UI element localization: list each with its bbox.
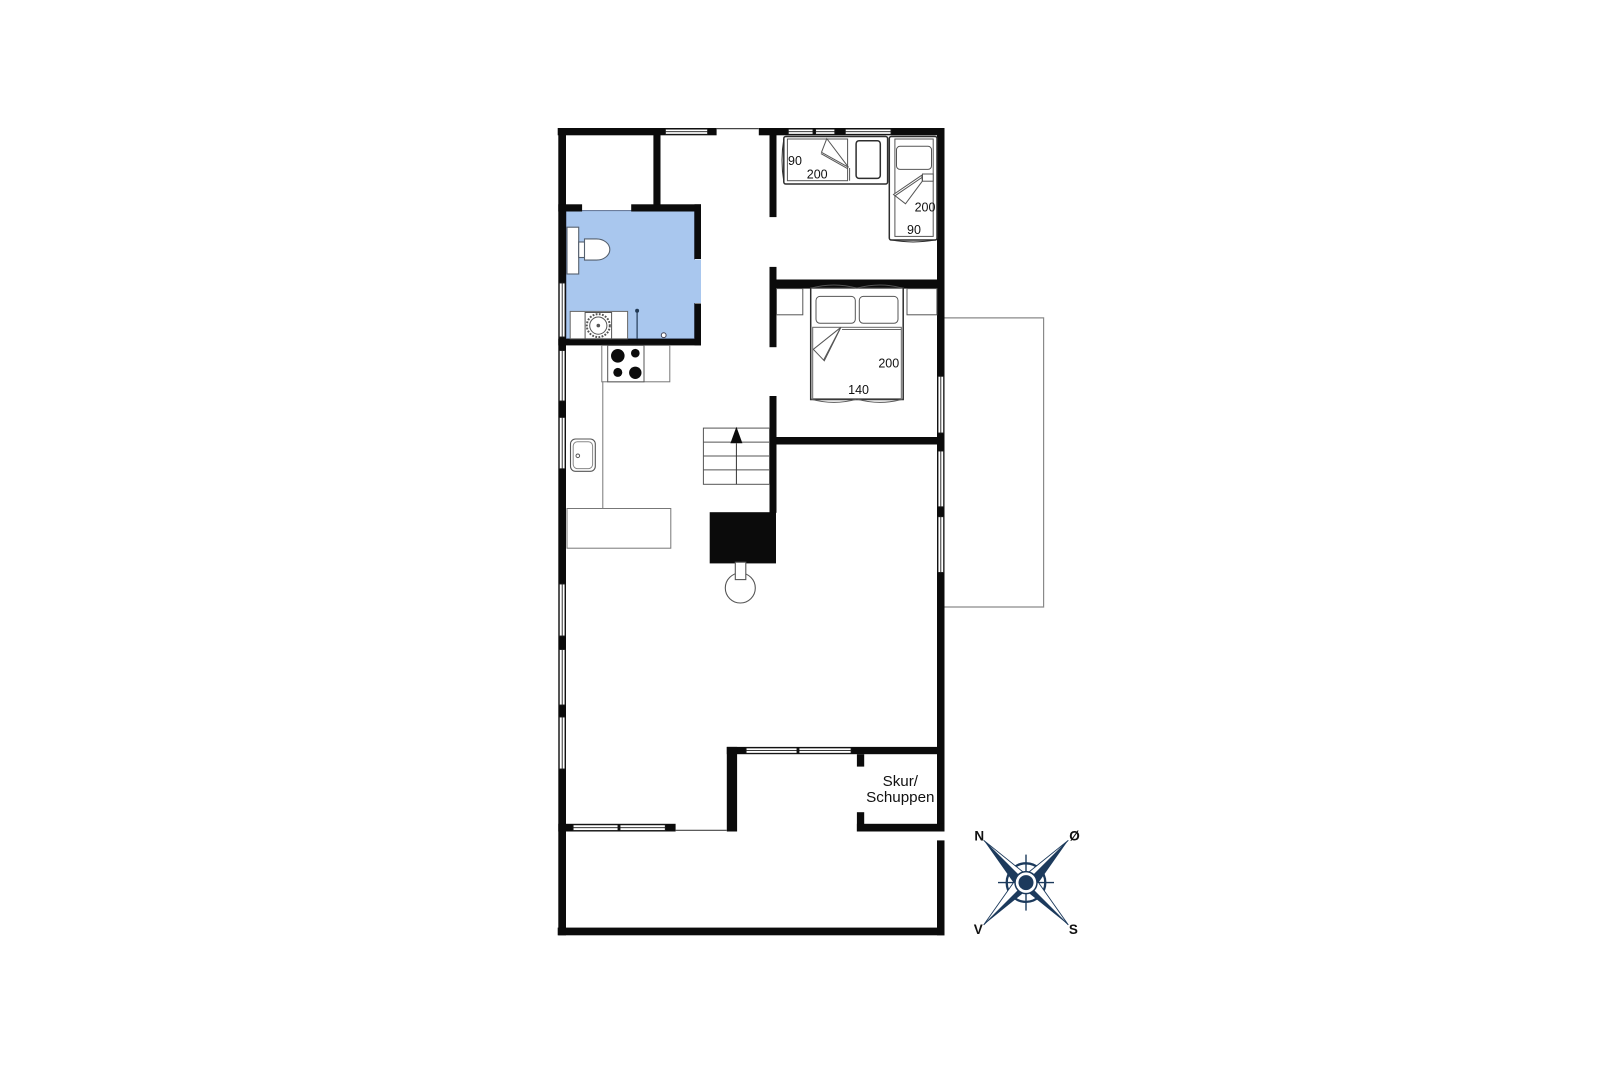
svg-text:200: 200 (878, 357, 899, 371)
svg-text:200: 200 (915, 201, 936, 215)
svg-text:Ø: Ø (1069, 829, 1080, 844)
svg-text:Skur/: Skur/ (883, 773, 919, 790)
svg-text:90: 90 (788, 154, 802, 168)
svg-text:N: N (974, 829, 984, 844)
svg-text:90: 90 (907, 223, 921, 237)
svg-text:140: 140 (848, 383, 869, 397)
svg-text:V: V (974, 922, 983, 937)
svg-text:S: S (1069, 922, 1078, 937)
svg-text:200: 200 (807, 168, 828, 182)
svg-text:Schuppen: Schuppen (866, 789, 934, 806)
